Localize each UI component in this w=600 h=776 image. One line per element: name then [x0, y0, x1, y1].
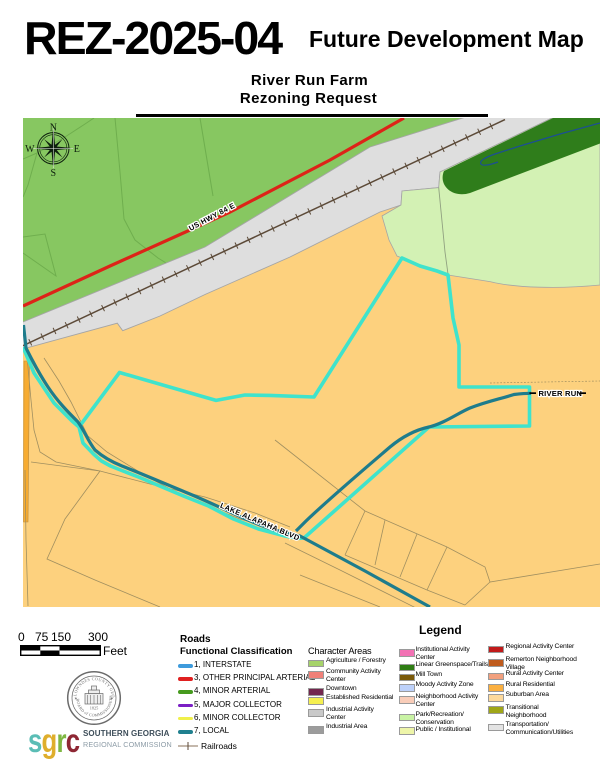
svg-text:S: S — [51, 168, 57, 179]
svg-text:W: W — [25, 144, 35, 155]
svg-text:✶: ✶ — [74, 696, 78, 701]
svg-text:RIVER RUN: RIVER RUN — [539, 389, 583, 398]
svg-text:N: N — [50, 122, 57, 133]
svg-text:E: E — [74, 144, 80, 155]
svg-text:✶: ✶ — [110, 696, 114, 701]
svg-text:1825: 1825 — [90, 706, 99, 711]
